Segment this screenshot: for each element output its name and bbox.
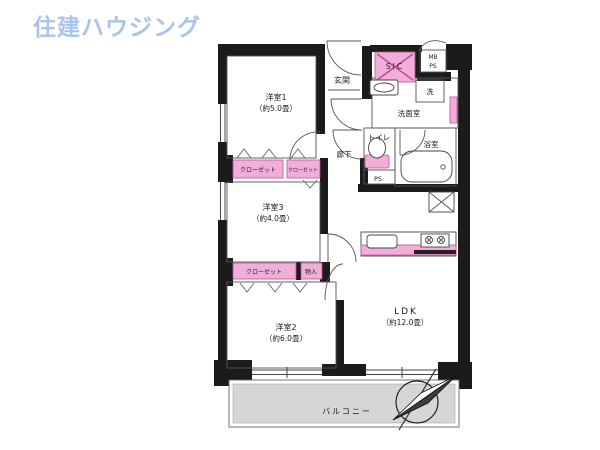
towel-rail bbox=[450, 97, 457, 123]
closet1-label: クローゼット bbox=[240, 166, 276, 174]
yoshitsu2-size: （約6.0畳） bbox=[265, 333, 307, 343]
meterbox-door bbox=[419, 41, 446, 50]
balcony-label: バルコニー bbox=[322, 407, 372, 416]
ps-shaft-label: PS bbox=[374, 175, 382, 183]
storage-mononyu: 物入 bbox=[301, 263, 322, 279]
mb-label: MB bbox=[428, 54, 437, 61]
yoshitsu3-door bbox=[328, 234, 356, 262]
closet2-label: クローゼット bbox=[288, 167, 318, 174]
yoshitsu1-name: 洋室1 bbox=[265, 92, 286, 102]
closet-yoshitsu1: クローゼット bbox=[233, 160, 283, 178]
senmenshitsu-label: 洗面室 bbox=[398, 108, 421, 118]
bathroom-fixtures bbox=[365, 80, 452, 182]
yoshitsu3-size: （約4.0畳） bbox=[252, 213, 294, 223]
room-labels: 洋室1 （約5.0畳） 洋室3 （約4.0畳） 洋室2 （約6.0畳） LDK … bbox=[252, 54, 439, 343]
mononyu-label: 物入 bbox=[305, 268, 317, 276]
bathtub bbox=[401, 151, 452, 182]
washbasin bbox=[370, 80, 398, 95]
laundry-label: 洗 bbox=[427, 87, 434, 96]
shoe-closet-sic: SIC bbox=[375, 52, 415, 82]
kitchen-sink bbox=[367, 235, 397, 248]
floorplan-drawing: SIC クローゼット クローゼット クローゼット 物入 bbox=[0, 0, 600, 450]
bath-label: 浴室 bbox=[424, 139, 439, 149]
yoshitsu2-name: 洋室2 bbox=[275, 322, 296, 332]
closet3-label: クローゼット bbox=[246, 268, 282, 276]
yoshitsu1-size: （約5.0畳） bbox=[255, 103, 297, 113]
entrance-door bbox=[327, 41, 361, 75]
floorplan-page: 住建ハウジング bbox=[0, 0, 600, 450]
shaft-hatch-box bbox=[429, 192, 454, 212]
ldk-size: （約12.0畳） bbox=[382, 317, 429, 327]
toilet-label: トイレ bbox=[368, 133, 391, 142]
closet-yoshitsu3: クローゼット bbox=[287, 160, 320, 178]
sic-label: SIC bbox=[386, 62, 404, 71]
rouka-label: 廊下 bbox=[337, 149, 352, 159]
kitchen-counter bbox=[361, 232, 456, 256]
toilet bbox=[365, 138, 389, 168]
ldk-name: LDK bbox=[394, 307, 418, 317]
closet-yoshitsu2: クローゼット bbox=[233, 263, 296, 279]
genkan-label: 玄関 bbox=[334, 75, 350, 85]
yoshitsu3-name: 洋室3 bbox=[262, 202, 283, 212]
yoshitsu1-door bbox=[290, 132, 320, 160]
washroom-door bbox=[331, 99, 362, 130]
stove bbox=[421, 234, 449, 247]
ps-meter-label: PS bbox=[429, 63, 437, 70]
